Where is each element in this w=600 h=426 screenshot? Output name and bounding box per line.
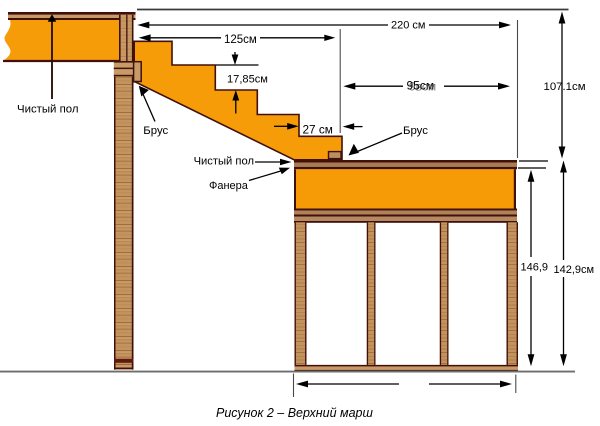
svg-text:125см: 125см [224,34,257,46]
svg-text:27 см: 27 см [303,123,333,137]
svg-text:220 см: 220 см [391,20,425,32]
svg-text:Чистый пол: Чистый пол [17,104,78,116]
svg-text:146,9: 146,9 [521,262,549,274]
svg-text:Брус: Брус [403,125,428,137]
svg-text:95см: 95см [407,79,435,93]
svg-text:Чистый пол: Чистый пол [194,156,254,168]
svg-text:Фанера: Фанера [209,180,249,192]
svg-text:Брус: Брус [143,125,168,137]
svg-text:107.1см: 107.1см [544,81,586,93]
svg-text:142,9см: 142,9см [554,264,595,276]
svg-text:17,85см: 17,85см [227,74,268,86]
svg-text:Рисунок 2 – Верхний марш: Рисунок 2 – Верхний марш [216,406,374,420]
